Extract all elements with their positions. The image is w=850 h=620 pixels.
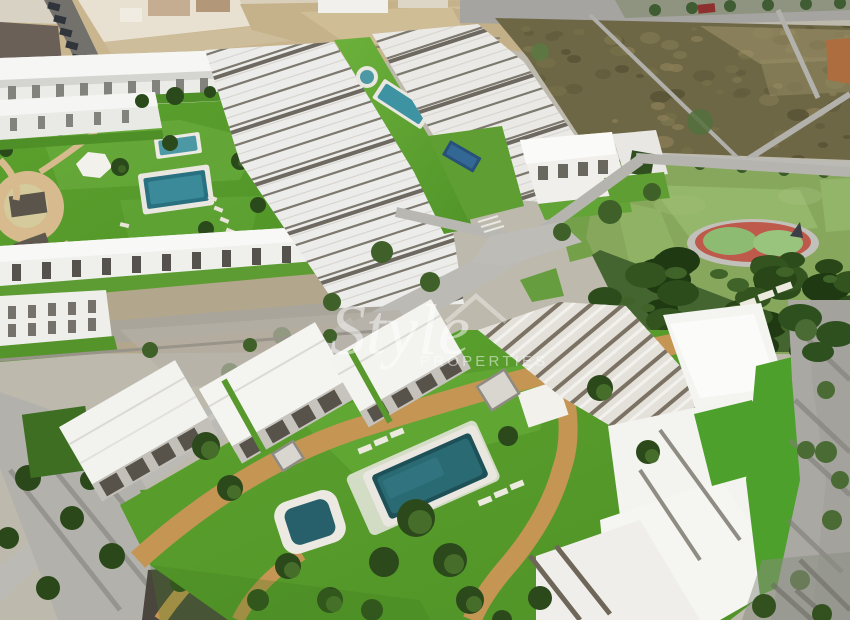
- svg-text:PROPERTIES: PROPERTIES: [420, 353, 548, 370]
